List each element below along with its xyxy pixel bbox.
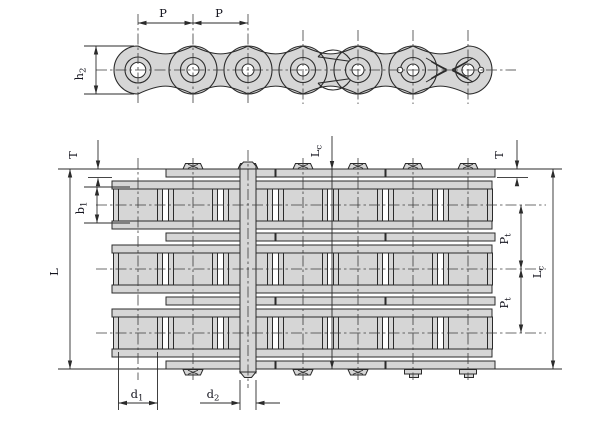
dim-arrowhead — [330, 161, 334, 170]
dim-arrowhead — [193, 21, 202, 25]
dim-arrowhead — [551, 361, 555, 370]
technical-drawing-canvas: P P h2 T Lc T b1 L Pt Pt Lc d1 d2 — [0, 0, 615, 423]
inner-plate-bar — [112, 181, 492, 189]
dim-label-h2: h2 — [72, 68, 89, 81]
dim-label-l: L — [47, 268, 61, 276]
inner-plate-bar — [112, 309, 492, 317]
dim-arrowhead — [68, 169, 72, 178]
dim-arrowhead — [256, 401, 265, 405]
dim-arrowhead — [149, 401, 158, 405]
outer-plate-top — [386, 169, 495, 177]
dim-arrowhead — [96, 178, 100, 187]
dim-arrowhead — [515, 178, 519, 187]
intermediate-plate — [386, 297, 495, 305]
dim-label-d2: d2 — [207, 387, 220, 404]
dim-arrowhead — [519, 325, 523, 334]
side-view — [84, 14, 516, 104]
dim-arrowhead — [96, 161, 100, 170]
dim-label-p-1: P — [159, 6, 167, 20]
inner-plate-bar — [112, 221, 492, 229]
dim-arrowhead — [94, 86, 98, 95]
inner-plate-bar — [112, 245, 492, 253]
dim-arrowhead — [551, 169, 555, 178]
dim-label-b1: b1 — [73, 202, 90, 215]
dim-label-d1: d1 — [131, 387, 144, 404]
dim-label-t-left: T — [66, 151, 80, 159]
intermediate-plate — [166, 233, 275, 241]
dim-arrowhead — [95, 215, 99, 224]
intermediate-plate — [166, 297, 275, 305]
outer-plate-bottom — [166, 361, 275, 369]
intermediate-plate — [386, 233, 495, 241]
roller-chain-diagram: P P h2 T Lc T b1 L Pt Pt Lc d1 d2 — [0, 0, 615, 423]
inner-plate-bar — [112, 285, 492, 293]
dim-arrowhead — [519, 269, 523, 278]
plan-view — [58, 136, 562, 410]
cotter-foot — [410, 374, 419, 378]
cotter-foot — [465, 374, 474, 378]
dim-arrowhead — [232, 401, 241, 405]
outer-plate-bottom — [386, 361, 495, 369]
dim-label-lc-top: Lc — [308, 145, 325, 158]
dim-label-pt-upper: Pt — [497, 233, 514, 245]
dim-arrowhead — [519, 261, 523, 270]
dim-arrowhead — [138, 21, 147, 25]
dim-label-lc-right: Lc — [530, 266, 547, 279]
dim-arrowhead — [240, 21, 249, 25]
dim-arrowhead — [68, 361, 72, 370]
intermediate-plate — [276, 297, 385, 305]
outer-plate-top — [276, 169, 385, 177]
dim-arrowhead — [94, 46, 98, 55]
dim-arrowhead — [119, 401, 128, 405]
dim-label-t-right: T — [492, 151, 506, 159]
dim-arrowhead — [95, 187, 99, 196]
outer-plate-top — [166, 169, 275, 177]
dim-arrowhead — [519, 205, 523, 214]
intermediate-plate — [276, 233, 385, 241]
dim-label-p-2: P — [215, 6, 223, 20]
dim-label-pt-lower: Pt — [497, 297, 514, 309]
dim-arrowhead — [185, 21, 194, 25]
dim-arrowhead — [515, 161, 519, 170]
inner-plate-bar — [112, 349, 492, 357]
